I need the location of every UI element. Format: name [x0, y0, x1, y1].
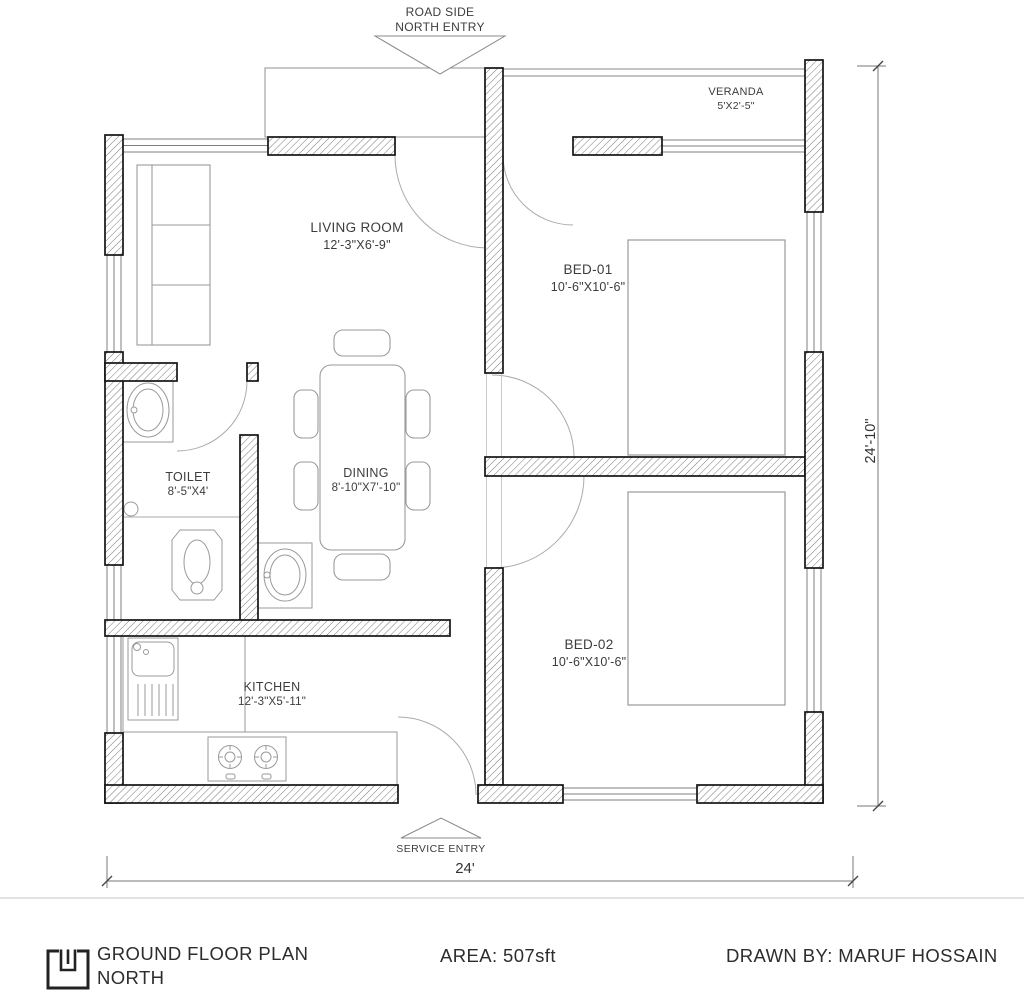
wall-left-1: [105, 135, 123, 255]
wall-center-upper: [485, 68, 503, 373]
bed-01-door-arc: [492, 375, 574, 457]
wall-toilet-top: [105, 363, 177, 381]
window-left-living: [107, 255, 121, 352]
room-size: 5'X2'-5": [708, 100, 763, 113]
room-size: 8'-5"X4': [165, 485, 210, 500]
room-size: 8'-10"X7'-10": [332, 481, 401, 496]
dining-table: [320, 365, 405, 550]
window-top-bed-01: [662, 140, 805, 152]
dining-label: DINING 8'-10"X7'-10": [332, 465, 401, 496]
wall-bottom-3: [697, 785, 823, 803]
floor-plan-page: ROAD SIDE NORTH ENTRY SERVICE ENTRY LIVI…: [0, 0, 1024, 1002]
plan-orientation: NORTH: [97, 967, 164, 989]
bed-02-door-arc: [492, 476, 584, 568]
service-entry-arrow: [401, 818, 481, 838]
toilet-commode: [172, 530, 222, 600]
window-top-living: [123, 139, 268, 152]
wall-toilet-right: [240, 435, 258, 633]
room-size: 12'-3"X6'-9": [310, 237, 403, 253]
window-right-bed-02: [807, 568, 821, 712]
north-entry-line1: ROAD SIDE: [395, 5, 485, 20]
wall-left-2: [105, 352, 123, 565]
veranda-label: VERANDA 5'X2'-5": [708, 86, 763, 113]
toilet-door-arc: [177, 381, 247, 451]
room-name: LIVING ROOM: [310, 219, 403, 237]
kitchen-label: KITCHEN 12'-3"X5'-11": [238, 679, 306, 710]
service-door-arc: [398, 717, 476, 795]
wall-kitchen-top: [105, 620, 450, 636]
toilet-partition: [123, 502, 240, 517]
north-entry-label: ROAD SIDE NORTH ENTRY: [395, 5, 485, 34]
room-name: KITCHEN: [238, 679, 306, 695]
bed-02-bed: [628, 492, 785, 705]
wall-bottom-1: [105, 785, 398, 803]
main-entry-door-arc: [395, 155, 488, 248]
logo-icon: [48, 950, 88, 989]
dimension-width-label: 24': [455, 860, 475, 877]
living-room-label: LIVING ROOM 12'-3"X6'-9": [310, 219, 403, 253]
veranda-door-arc: [503, 155, 573, 225]
entry-porch: [265, 68, 485, 137]
room-name: DINING: [332, 465, 401, 481]
window-left-kitchen: [107, 565, 121, 733]
plan-drawn-by: DRAWN BY: MARUF HOSSAIN: [726, 945, 998, 967]
room-size: 10'-6"X10'-6": [552, 654, 627, 670]
wash-basin-dining: [258, 543, 312, 608]
bed-01-label: BED-01 10'-6"X10'-6": [551, 261, 626, 295]
service-entry-label: SERVICE ENTRY: [396, 843, 485, 855]
room-name: TOILET: [165, 469, 210, 485]
wall-right-2: [805, 352, 823, 568]
wash-basin-toilet: [123, 378, 173, 442]
wall-toilet-stop: [247, 363, 258, 381]
room-name: VERANDA: [708, 86, 763, 100]
floor-plan-drawing: [0, 0, 1024, 1002]
sofa: [137, 165, 210, 345]
north-entry-line2: NORTH ENTRY: [395, 20, 485, 35]
wall-middle: [485, 457, 805, 476]
window-right-bed-01: [807, 212, 821, 352]
wall-top-living: [268, 137, 395, 155]
window-bottom-bed-02: [563, 788, 697, 800]
toilet-label: TOILET 8'-5"X4': [165, 469, 210, 500]
room-name: BED-02: [552, 636, 627, 654]
room-size: 10'-6"X10'-6": [551, 279, 626, 295]
bed-02-label: BED-02 10'-6"X10'-6": [552, 636, 627, 670]
wall-top-bed-01: [573, 137, 662, 155]
dimension-line-bottom: [102, 856, 858, 888]
wall-right-1: [805, 60, 823, 212]
wall-bottom-2: [478, 785, 563, 803]
plan-title: GROUND FLOOR PLAN: [97, 943, 308, 965]
kitchen-stove: [208, 737, 286, 781]
veranda-rail: [503, 69, 805, 76]
plan-area: AREA: 507sft: [440, 945, 556, 967]
room-size: 12'-3"X5'-11": [238, 695, 306, 710]
room-name: BED-01: [551, 261, 626, 279]
wall-center-lower: [485, 568, 503, 785]
dimension-height-label: 24'-10": [863, 418, 879, 463]
bed-01-bed: [628, 240, 785, 455]
kitchen-sink: [128, 638, 178, 720]
